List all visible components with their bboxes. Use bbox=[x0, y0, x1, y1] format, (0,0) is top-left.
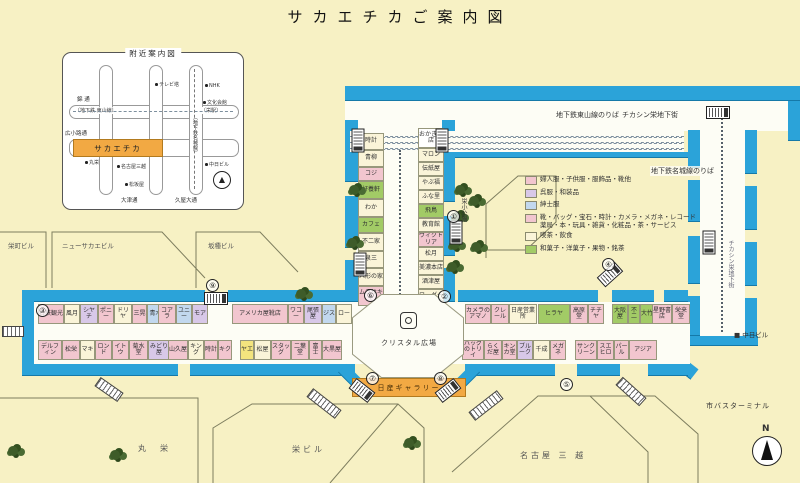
shop-block: 尾張屋 bbox=[304, 304, 322, 324]
legend-item: 婦人服・子供服・服飾品・靴他 bbox=[525, 175, 697, 185]
shop-block: ドリヤ bbox=[114, 304, 132, 324]
page-title: サカエチカご案内図 bbox=[0, 6, 800, 27]
shop-block: ユニー bbox=[176, 304, 192, 324]
tree bbox=[455, 185, 465, 195]
shop-block: 不二 bbox=[628, 304, 640, 324]
mitsukoshi-poi: 名古屋三越 bbox=[117, 163, 146, 170]
shop-block: ワコー bbox=[288, 304, 304, 324]
shop-block: コアラ bbox=[158, 304, 176, 324]
exit-number-7: ⑦ bbox=[366, 372, 379, 385]
shop-block: コジ bbox=[358, 167, 384, 181]
east-north-shops-2: ヒラヤ高原堂チチヤ bbox=[538, 304, 604, 324]
sakae-park-label: 栄小公園 bbox=[459, 198, 468, 222]
exit-number-3: ③ bbox=[36, 304, 49, 317]
shop-block: チチヤ bbox=[588, 304, 604, 324]
shop-block: 高原堂 bbox=[570, 304, 588, 324]
shop-block: シヤチ bbox=[80, 304, 98, 324]
shop-block: 星野書店 bbox=[652, 304, 672, 324]
sakae-chika-highlight-label: サカエチカ bbox=[94, 143, 142, 154]
shop-block: キンカ堂 bbox=[502, 340, 517, 360]
shop-block: メガネ bbox=[550, 340, 566, 360]
exit-number-4: ④ bbox=[602, 258, 615, 271]
east-north-shops-1: カメラのアマノクレール日産営業所 bbox=[465, 304, 537, 324]
sakae-chika-guide-map: サカエチカご案内図 地下鉄東山線のりば チカシン栄地下街 地下鉄名城 bbox=[0, 0, 800, 483]
shop-block: わか bbox=[358, 199, 384, 217]
shop-block: サンクリーン bbox=[575, 340, 597, 360]
shop-block: スタッグ bbox=[271, 340, 291, 360]
sakae-building-label: 栄ビル bbox=[292, 444, 325, 455]
platform-line bbox=[352, 149, 682, 150]
legend-item: 靴・バッグ・宝石・時計・カメラ・メガネ・レコード 薬局・本・玩具・雑貨・化粧品・… bbox=[525, 213, 697, 229]
inset-compass-icon: ▲ bbox=[213, 171, 231, 189]
north-label: N bbox=[762, 424, 770, 434]
shop-block: 大黒屋 bbox=[322, 340, 342, 360]
escalator-icon bbox=[204, 292, 228, 305]
shop-block: アメリカ屋靴店 bbox=[232, 304, 288, 324]
shop-block: 松栄 bbox=[62, 340, 80, 360]
tree bbox=[347, 238, 357, 248]
maruei-label: 丸 栄 bbox=[138, 443, 171, 454]
shop-block: 日産営業所 bbox=[509, 304, 537, 324]
vicinity-map: 附近案内図 〔地下鉄 東山線〕 〔栄駅〕 〔地下鉄名城線〕 サカエチカ 錦 通 … bbox=[62, 52, 244, 210]
escalator-icon bbox=[354, 253, 367, 277]
sakaemachi-building-label: 栄町ビル bbox=[8, 240, 34, 250]
exit-number-9: ⑨ bbox=[206, 279, 219, 292]
shop-block: スエヒロ bbox=[597, 340, 614, 360]
legend-item: 紳士服 bbox=[525, 200, 697, 210]
chikashin-label: チカシン栄地下街 bbox=[622, 110, 678, 120]
exit-number-1: ① bbox=[447, 210, 460, 223]
bus-terminal-label: 市バスターミナル bbox=[706, 401, 770, 411]
tree bbox=[110, 450, 120, 460]
meijo-line bbox=[194, 69, 195, 189]
center-right-shops: おかき書店マロン伝紙屋やぶ福ふな里飛鳥教育館ヴィクトリア松月美濃本店酒津屋ワーグ… bbox=[418, 128, 442, 319]
legend: 婦人服・子供服・服飾品・靴他呉服・和装品紳士服靴・バッグ・宝石・時計・カメラ・メ… bbox=[525, 175, 697, 254]
shop-block: マキ bbox=[80, 340, 95, 360]
shop-block: 千成 bbox=[533, 340, 550, 360]
shop-block: モア bbox=[192, 304, 208, 324]
shop-block: ヴィクトリア bbox=[418, 232, 444, 247]
shop-block: 青柳 bbox=[358, 150, 384, 167]
shop-block: みどり屋 bbox=[148, 340, 170, 360]
tree bbox=[349, 185, 359, 195]
chunichi-building-marker: ■ 中日ビル bbox=[734, 329, 768, 339]
hirokoji-street-label: 広小路通 bbox=[65, 129, 87, 137]
shop-block: 大阪屋 bbox=[612, 304, 628, 324]
sakae-chika-highlight: サカエチカ bbox=[73, 139, 163, 157]
crystal-plaza-label: クリスタル広場 bbox=[381, 338, 437, 348]
west-south-shops-3: ヤエ松屋スタッグ二葉堂富士大黒屋 bbox=[240, 340, 342, 360]
higashiyama-platform-label: 地下鉄東山線のりば bbox=[556, 110, 619, 120]
stairs-icon bbox=[2, 326, 24, 337]
tree bbox=[447, 262, 457, 272]
exit-number-6: ⑥ bbox=[364, 289, 377, 302]
street-vertical bbox=[99, 65, 113, 195]
shop-block: パール bbox=[614, 340, 629, 360]
maruei-poi: 丸栄 bbox=[85, 159, 99, 166]
platform-line bbox=[352, 143, 682, 144]
platform-line bbox=[352, 137, 682, 138]
tv-tower-poi: テレビ塔 bbox=[155, 81, 179, 88]
shop-block: 風月 bbox=[64, 304, 80, 324]
bunka-kaikan-poi: 文化会館 bbox=[203, 99, 227, 106]
tree bbox=[469, 196, 479, 206]
corridor-center-line bbox=[721, 106, 723, 332]
shop-block: 栄来堂 bbox=[672, 304, 690, 324]
shop-block: ジス bbox=[322, 304, 336, 324]
vicinity-map-title: 附近案内図 bbox=[125, 48, 181, 59]
shop-block: バッグのトリイ bbox=[462, 340, 484, 360]
west-north-shops-3: アメリカ屋靴店ワコー尾張屋ジスロー bbox=[232, 304, 352, 324]
shop-block: 三晃 bbox=[132, 304, 147, 324]
tree bbox=[296, 289, 306, 299]
shop-block: ブルーク bbox=[517, 340, 533, 360]
shop-block: 酒津屋 bbox=[418, 275, 444, 289]
nissan-gallery-label: 日産ギャラリー bbox=[378, 383, 441, 393]
matsuzakaya-poi: 松坂屋 bbox=[125, 181, 144, 188]
shop-block: 不二家 bbox=[358, 233, 384, 251]
legend-item: 喫茶・飲食 bbox=[525, 231, 697, 241]
legend-item: 呉服・和装品 bbox=[525, 188, 697, 198]
escalator-icon bbox=[436, 129, 449, 153]
shop-block: カフェ bbox=[358, 217, 384, 233]
higashiyama-line bbox=[73, 111, 233, 112]
escalator-icon bbox=[706, 106, 730, 119]
chunichi-poi: 中日ビル bbox=[205, 161, 229, 168]
shop-block: 山久屋 bbox=[168, 340, 188, 360]
west-north-shops-2: コアラユニーモア bbox=[158, 304, 208, 324]
east-north-shops-3: 大阪屋不二大竹 bbox=[612, 304, 654, 324]
shop-block: らくだ屋 bbox=[484, 340, 502, 360]
shop-block: 富士 bbox=[309, 340, 322, 360]
shop-block: ヒラヤ bbox=[538, 304, 570, 324]
shop-block: ヤエ bbox=[240, 340, 254, 360]
shop-block: カメラのアマノ bbox=[465, 304, 491, 324]
escalator-icon bbox=[450, 221, 463, 245]
tree bbox=[471, 242, 481, 252]
shop-block: イトウ bbox=[112, 340, 129, 360]
exit-number-2: ② bbox=[438, 290, 451, 303]
compass-icon bbox=[752, 436, 782, 466]
escalator-icon bbox=[703, 231, 716, 255]
shop-block: ロー bbox=[336, 304, 352, 324]
shop-block: デルフィン bbox=[38, 340, 62, 360]
shop-block: キング bbox=[188, 340, 204, 360]
crystal-plaza bbox=[352, 294, 464, 378]
shop-block: 時計 bbox=[204, 340, 218, 360]
shop-block: キク bbox=[218, 340, 232, 360]
west-south-shops-1: デルフィン松栄マキロンドイトウ菊水堂みどり屋 bbox=[38, 340, 170, 360]
fountain-icon bbox=[400, 312, 417, 329]
escalator-icon bbox=[352, 129, 365, 153]
shop-block: 菊水堂 bbox=[129, 340, 148, 360]
shop-block: アジア bbox=[629, 340, 657, 360]
otsu-street-label: 大津通 bbox=[121, 196, 138, 204]
shop-block: やぶ福 bbox=[418, 176, 444, 190]
east-south-shops-2: サンクリーンスエヒロパールアジア bbox=[575, 340, 657, 360]
shop-block: 伝紙屋 bbox=[418, 162, 444, 176]
shop-block: 美濃本店 bbox=[418, 261, 444, 275]
crystal-plaza-floor bbox=[353, 295, 463, 377]
shop-block: 松屋 bbox=[254, 340, 271, 360]
exit-number-5: ⑤ bbox=[560, 378, 573, 391]
chunichi-building-label: 中日ビル bbox=[742, 331, 768, 339]
shop-block: ポニー bbox=[98, 304, 114, 324]
shop-block: 飛鳥 bbox=[418, 204, 444, 218]
corridor-center-line bbox=[399, 150, 401, 295]
shop-block: ロンド bbox=[95, 340, 112, 360]
tree bbox=[404, 438, 414, 448]
new-sakae-building-label: ニューサカエビル bbox=[62, 240, 114, 250]
hisaya-street-label: 久屋大通 bbox=[175, 196, 197, 204]
chikashin-vertical-label: チカシン栄地下街 bbox=[726, 240, 735, 288]
tree bbox=[8, 446, 18, 456]
shop-block: 好養軒 bbox=[358, 181, 384, 199]
shop-block: ふな里 bbox=[418, 190, 444, 204]
shop-block: 松月 bbox=[418, 247, 444, 261]
shop-block: 二葉堂 bbox=[291, 340, 309, 360]
center-left-shops: 時計青柳コジ好養軒わかカフェ不二家泉三人形の家ムラサキヤ bbox=[358, 133, 382, 306]
sakatane-building-label: 坂種ビル bbox=[208, 240, 234, 250]
west-north-shops-1: 名鉄観光風月シヤチポニードリヤ三晃青木 bbox=[38, 304, 164, 324]
nishiki-street-label: 錦 通 bbox=[77, 95, 90, 103]
exit-number-8: ⑧ bbox=[434, 372, 447, 385]
west-south-shops-2: 山久屋キング時計キク bbox=[168, 340, 232, 360]
legend-item: 和菓子・洋菓子・果物・銘茶 bbox=[525, 244, 697, 254]
shop-block: クレール bbox=[491, 304, 509, 324]
mitsukoshi-label: 名古屋 三 越 bbox=[520, 450, 586, 461]
east-north-shops-4: 星野書店栄来堂 bbox=[652, 304, 690, 324]
nhk-poi: NHK bbox=[205, 83, 220, 89]
east-south-shops-1: バッグのトリイらくだ屋キンカ堂ブルーク千成メガネ bbox=[462, 340, 566, 360]
shop-block: 教育館 bbox=[418, 218, 444, 232]
